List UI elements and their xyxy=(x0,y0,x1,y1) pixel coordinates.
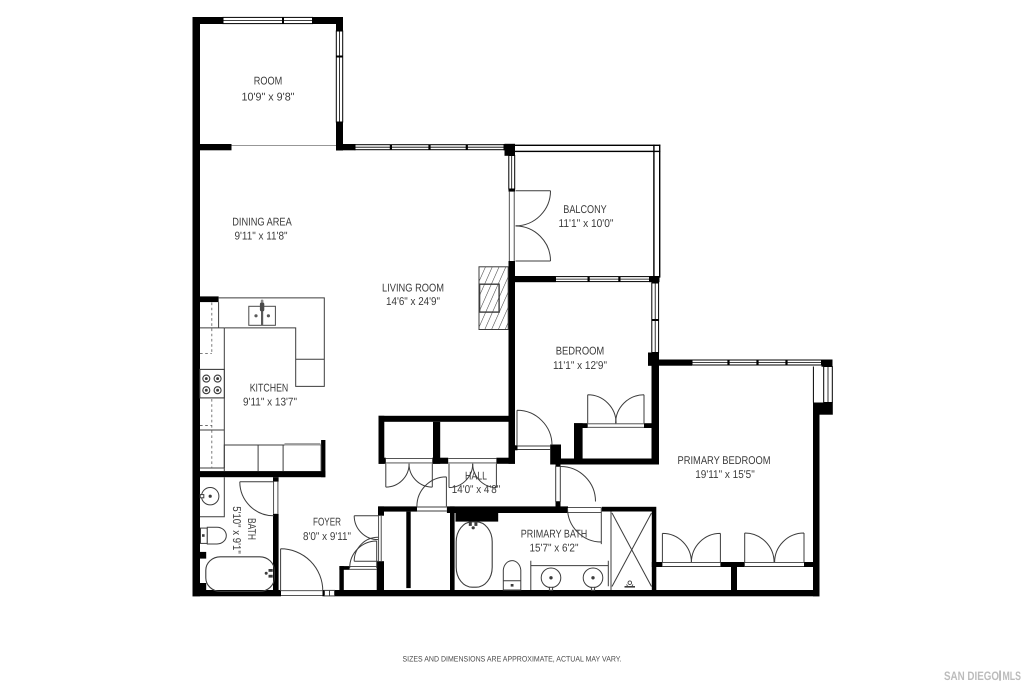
svg-text:MLS: MLS xyxy=(1003,669,1022,683)
svg-text:14'0" x 4'8": 14'0" x 4'8" xyxy=(452,484,501,496)
svg-text:BEDROOM: BEDROOM xyxy=(556,346,605,358)
svg-text:LIVING ROOM: LIVING ROOM xyxy=(382,283,444,295)
svg-text:HALL: HALL xyxy=(465,471,487,483)
svg-text:11'1" x 10'0": 11'1" x 10'0" xyxy=(559,218,614,230)
svg-text:KITCHEN: KITCHEN xyxy=(250,383,289,395)
svg-text:15'7" x 6'2": 15'7" x 6'2" xyxy=(530,543,579,555)
svg-text:FOYER: FOYER xyxy=(313,517,341,529)
svg-text:DINING AREA: DINING AREA xyxy=(232,217,292,229)
svg-text:BATH: BATH xyxy=(245,518,257,540)
svg-text:11'1" x 12'9": 11'1" x 12'9" xyxy=(553,360,607,372)
svg-text:9'11" x 13'7": 9'11" x 13'7" xyxy=(243,397,297,409)
svg-text:PRIMARY BEDROOM: PRIMARY BEDROOM xyxy=(678,455,771,467)
svg-text:19'11" x 15'5": 19'11" x 15'5" xyxy=(695,469,755,481)
svg-text:9'11" x 11'8": 9'11" x 11'8" xyxy=(235,231,288,243)
svg-text:8'0" x 9'11": 8'0" x 9'11" xyxy=(303,531,351,543)
svg-text:PRIMARY BATH: PRIMARY BATH xyxy=(521,529,588,541)
svg-text:ROOM: ROOM xyxy=(254,76,283,88)
svg-text:SAN DIEGO: SAN DIEGO xyxy=(944,669,999,683)
svg-text:BALCONY: BALCONY xyxy=(563,204,607,216)
svg-text:SIZES AND DIMENSIONS ARE APPRO: SIZES AND DIMENSIONS ARE APPROXIMATE, AC… xyxy=(403,655,622,664)
svg-text:5'10" x 9'1": 5'10" x 9'1" xyxy=(230,506,242,554)
svg-text:14'6" x 24'9": 14'6" x 24'9" xyxy=(386,296,440,308)
svg-text:10'9" x 9'8": 10'9" x 9'8" xyxy=(242,92,295,104)
